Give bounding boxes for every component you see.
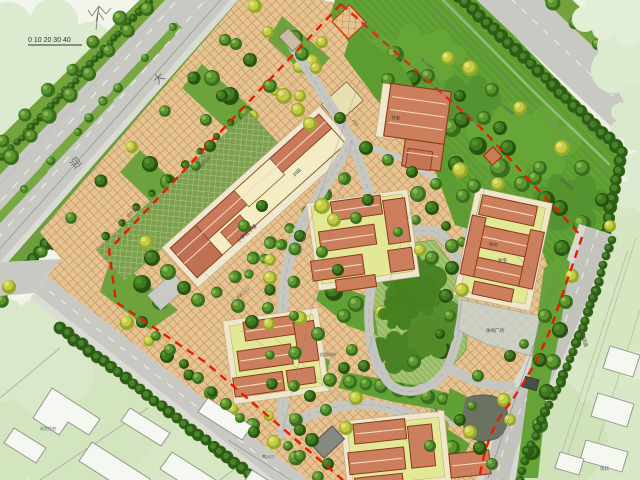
svg-text:住宅: 住宅 (498, 257, 507, 263)
svg-text:南入口: 南入口 (262, 453, 274, 459)
svg-text:现状: 现状 (600, 465, 609, 472)
svg-text:水景: 水景 (430, 407, 438, 413)
svg-text:0 10 20 30 40: 0 10 20 30 40 (28, 37, 71, 44)
svg-text:组团绿地: 组团绿地 (320, 351, 336, 357)
svg-text:休闲广场: 休闲广场 (486, 327, 504, 334)
svg-text:现状住宅: 现状住宅 (40, 425, 56, 431)
